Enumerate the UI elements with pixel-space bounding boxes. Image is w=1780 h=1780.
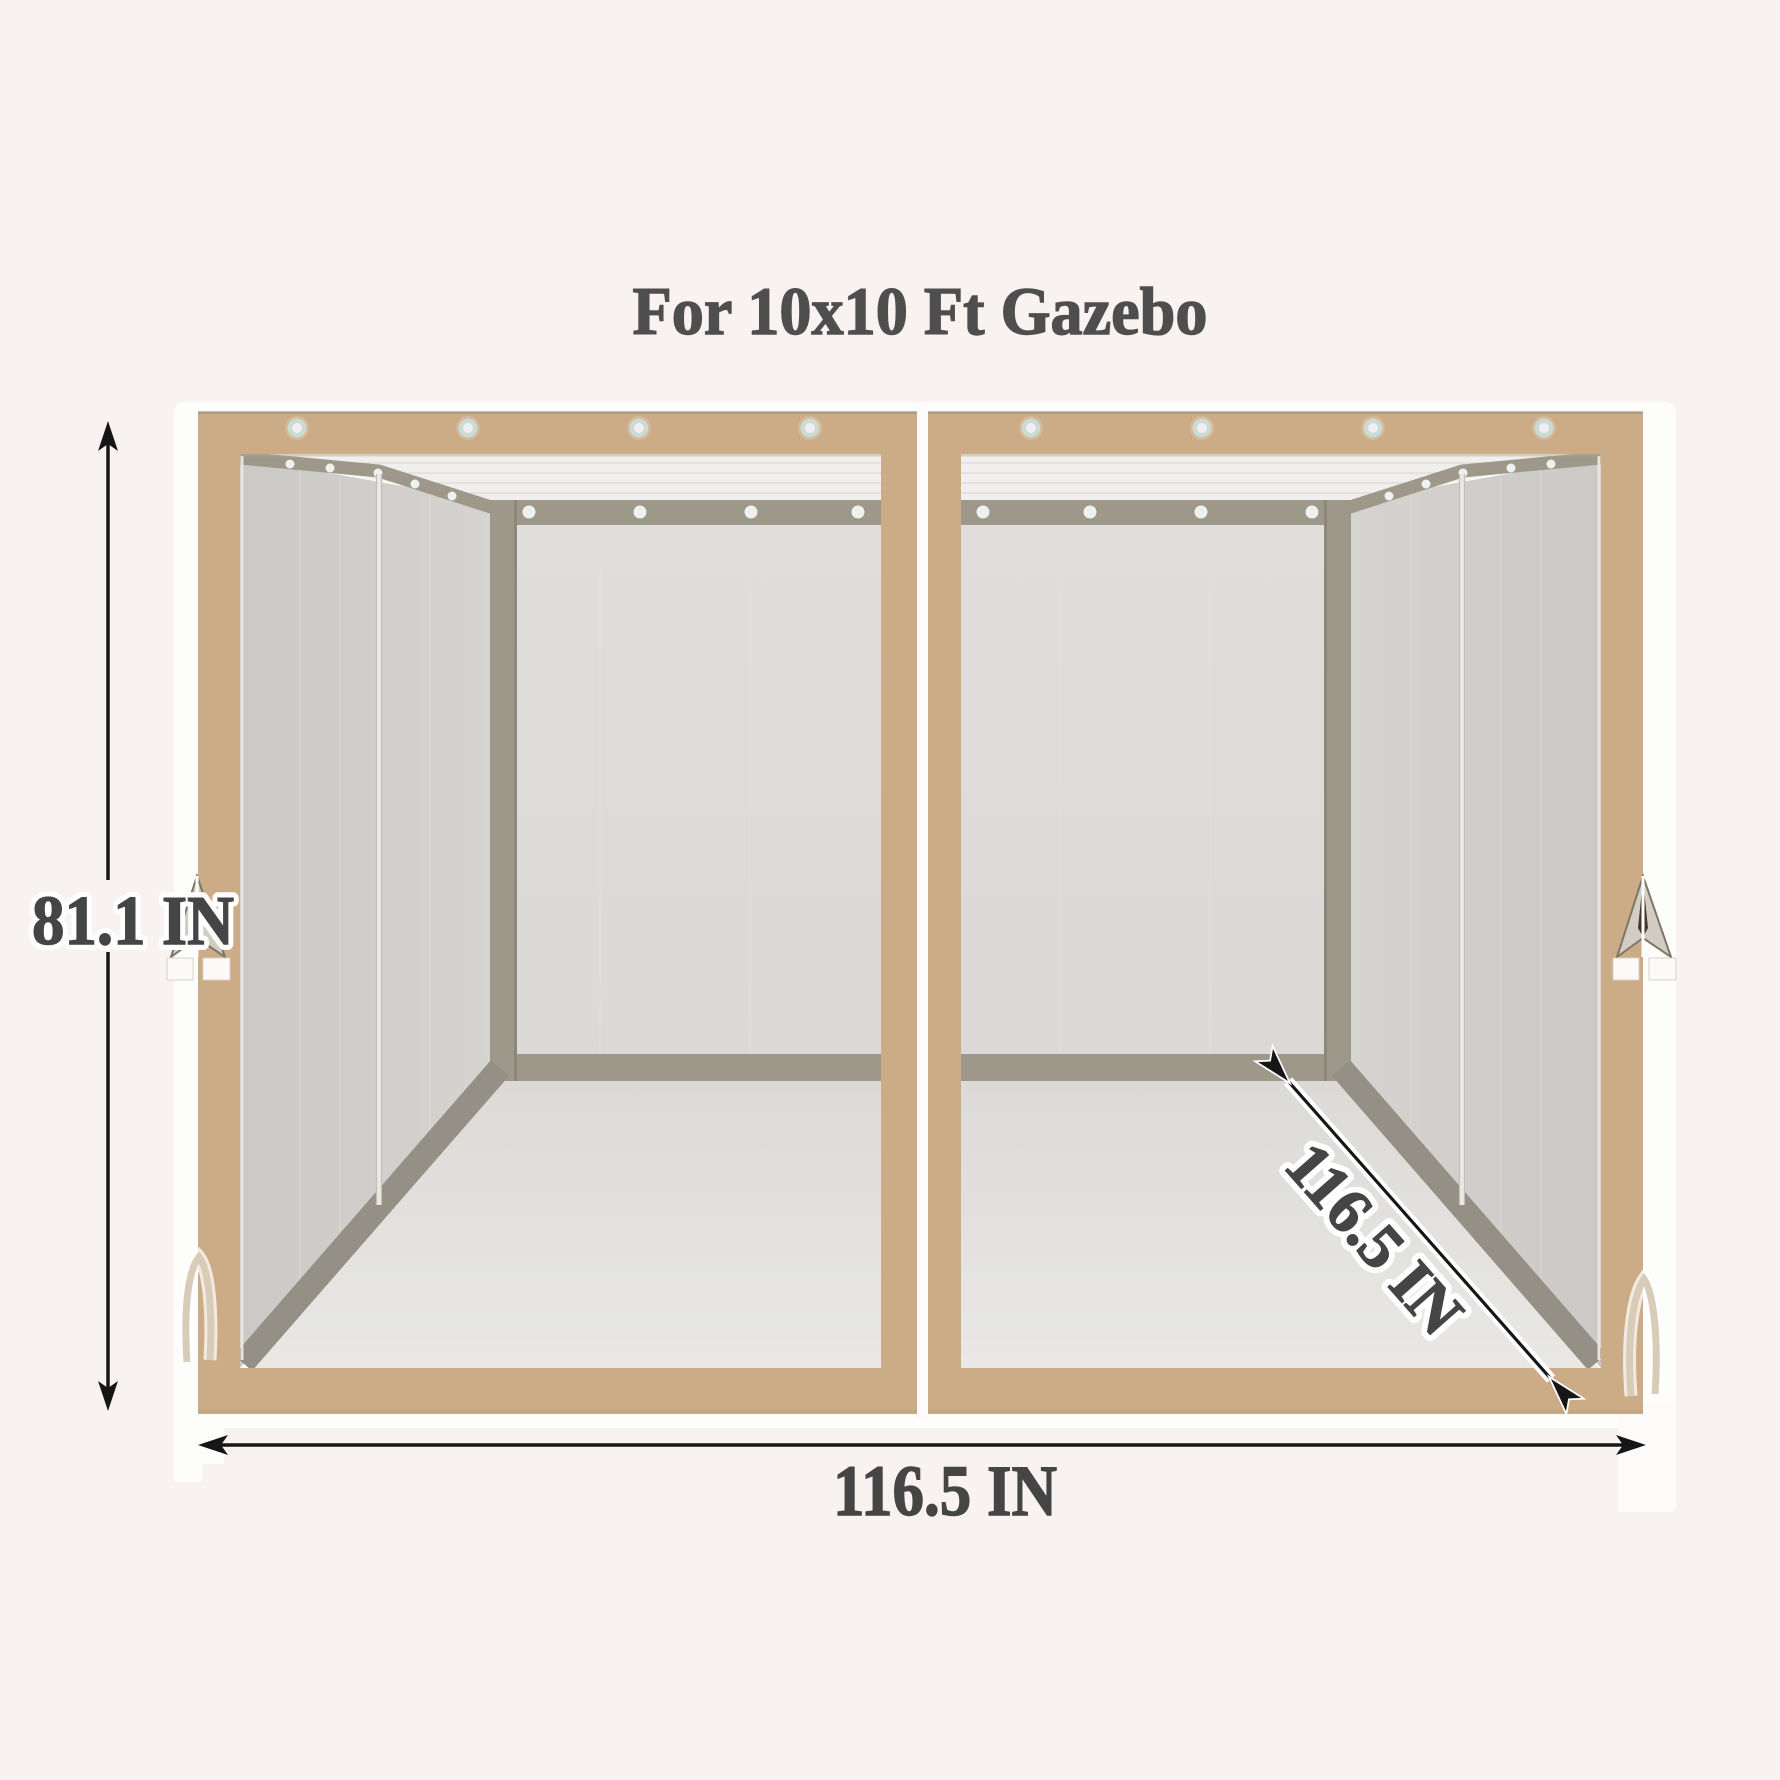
svg-text:81.1 IN: 81.1 IN	[32, 883, 234, 960]
svg-text:116.5 IN: 116.5 IN	[833, 1451, 1057, 1531]
svg-text:For 10x10 Ft Gazebo: For 10x10 Ft Gazebo	[633, 273, 1208, 349]
